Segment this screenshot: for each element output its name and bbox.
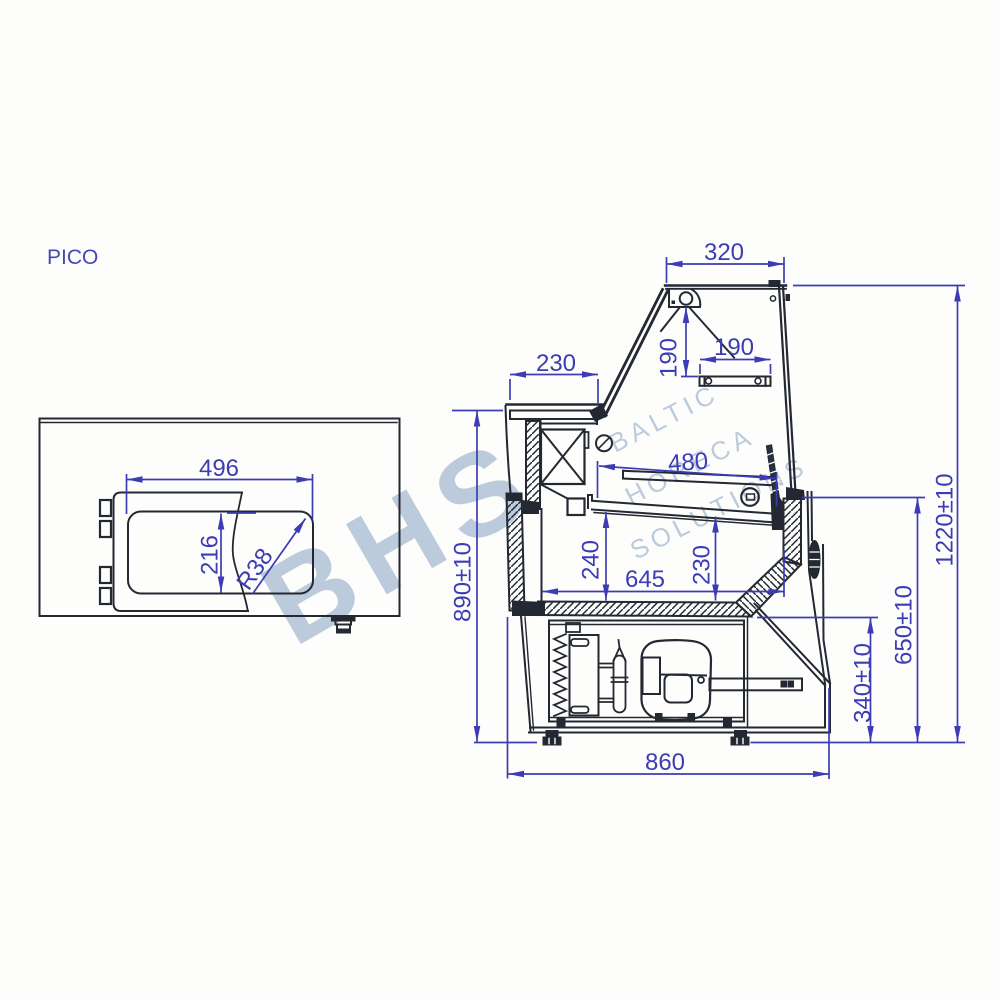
svg-text:890±10: 890±10	[449, 542, 476, 622]
svg-text:230: 230	[536, 350, 576, 377]
svg-text:480: 480	[667, 448, 709, 478]
svg-text:645: 645	[625, 566, 665, 593]
svg-text:240: 240	[577, 540, 604, 580]
svg-text:230: 230	[688, 545, 715, 585]
svg-text:496: 496	[199, 455, 239, 482]
svg-text:190: 190	[655, 338, 682, 378]
svg-text:PICO: PICO	[47, 246, 98, 269]
svg-text:650±10: 650±10	[890, 585, 917, 665]
svg-text:216: 216	[196, 535, 223, 575]
svg-text:320: 320	[704, 239, 744, 266]
svg-text:190: 190	[714, 334, 754, 361]
svg-text:860: 860	[645, 749, 685, 776]
svg-text:340±10: 340±10	[849, 643, 876, 723]
svg-text:1220±10: 1220±10	[931, 473, 958, 566]
